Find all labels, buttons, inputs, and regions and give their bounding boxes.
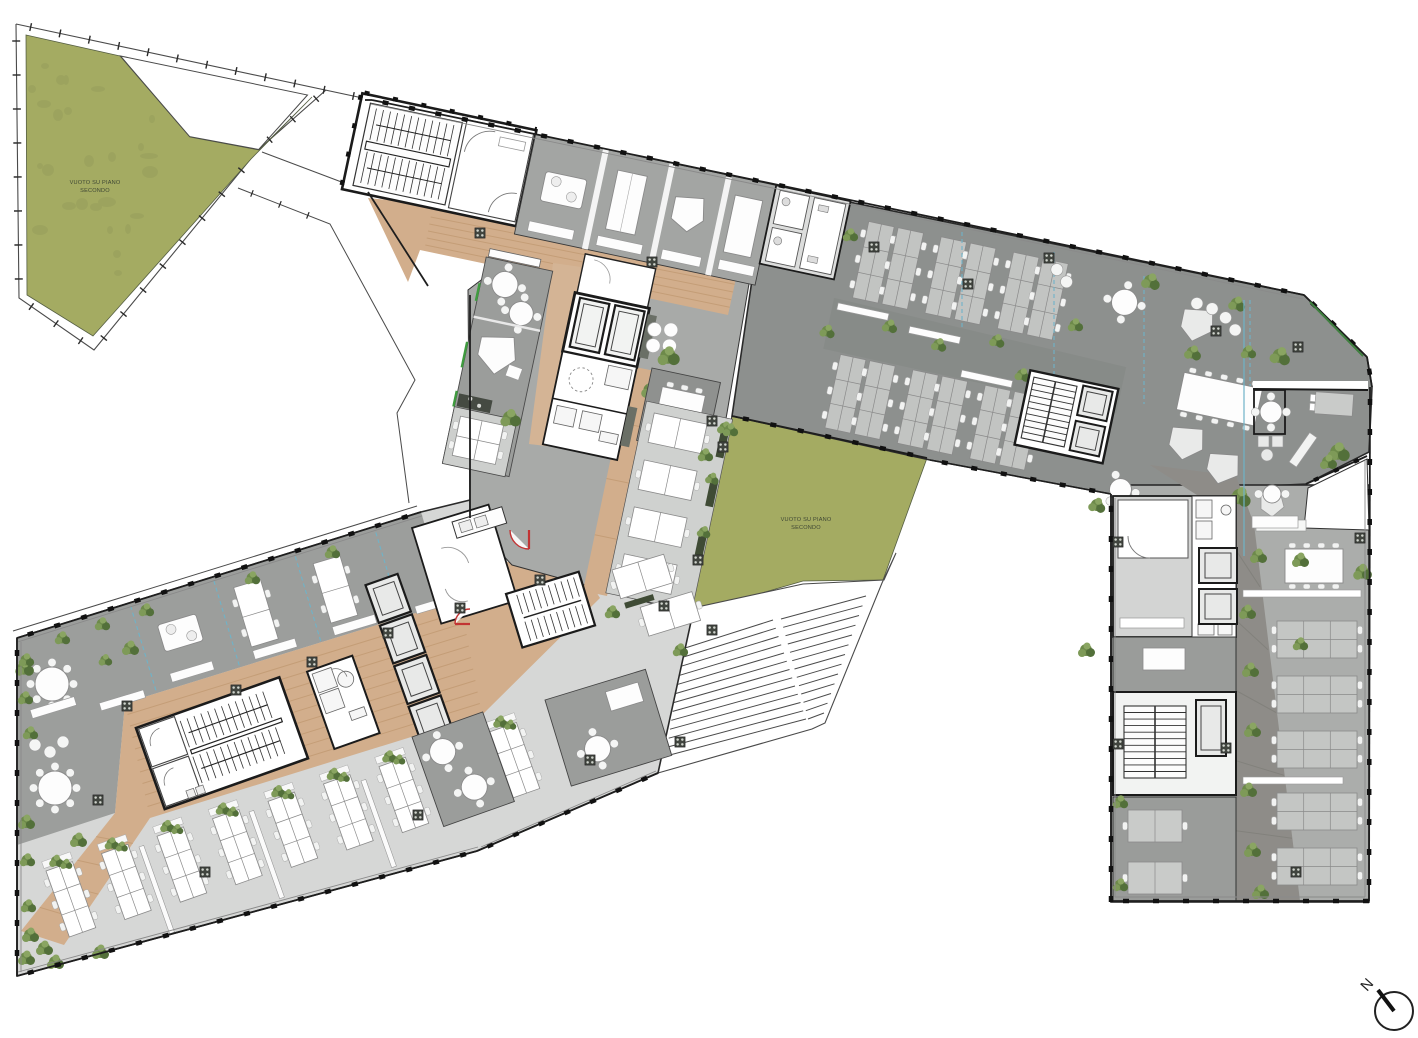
svg-text:SECONDO: SECONDO <box>80 188 110 194</box>
svg-text:SECONDO: SECONDO <box>791 525 821 531</box>
svg-text:VUOTO SU PIANO: VUOTO SU PIANO <box>781 517 832 523</box>
svg-text:VUOTO SU PIANO: VUOTO SU PIANO <box>70 180 121 186</box>
